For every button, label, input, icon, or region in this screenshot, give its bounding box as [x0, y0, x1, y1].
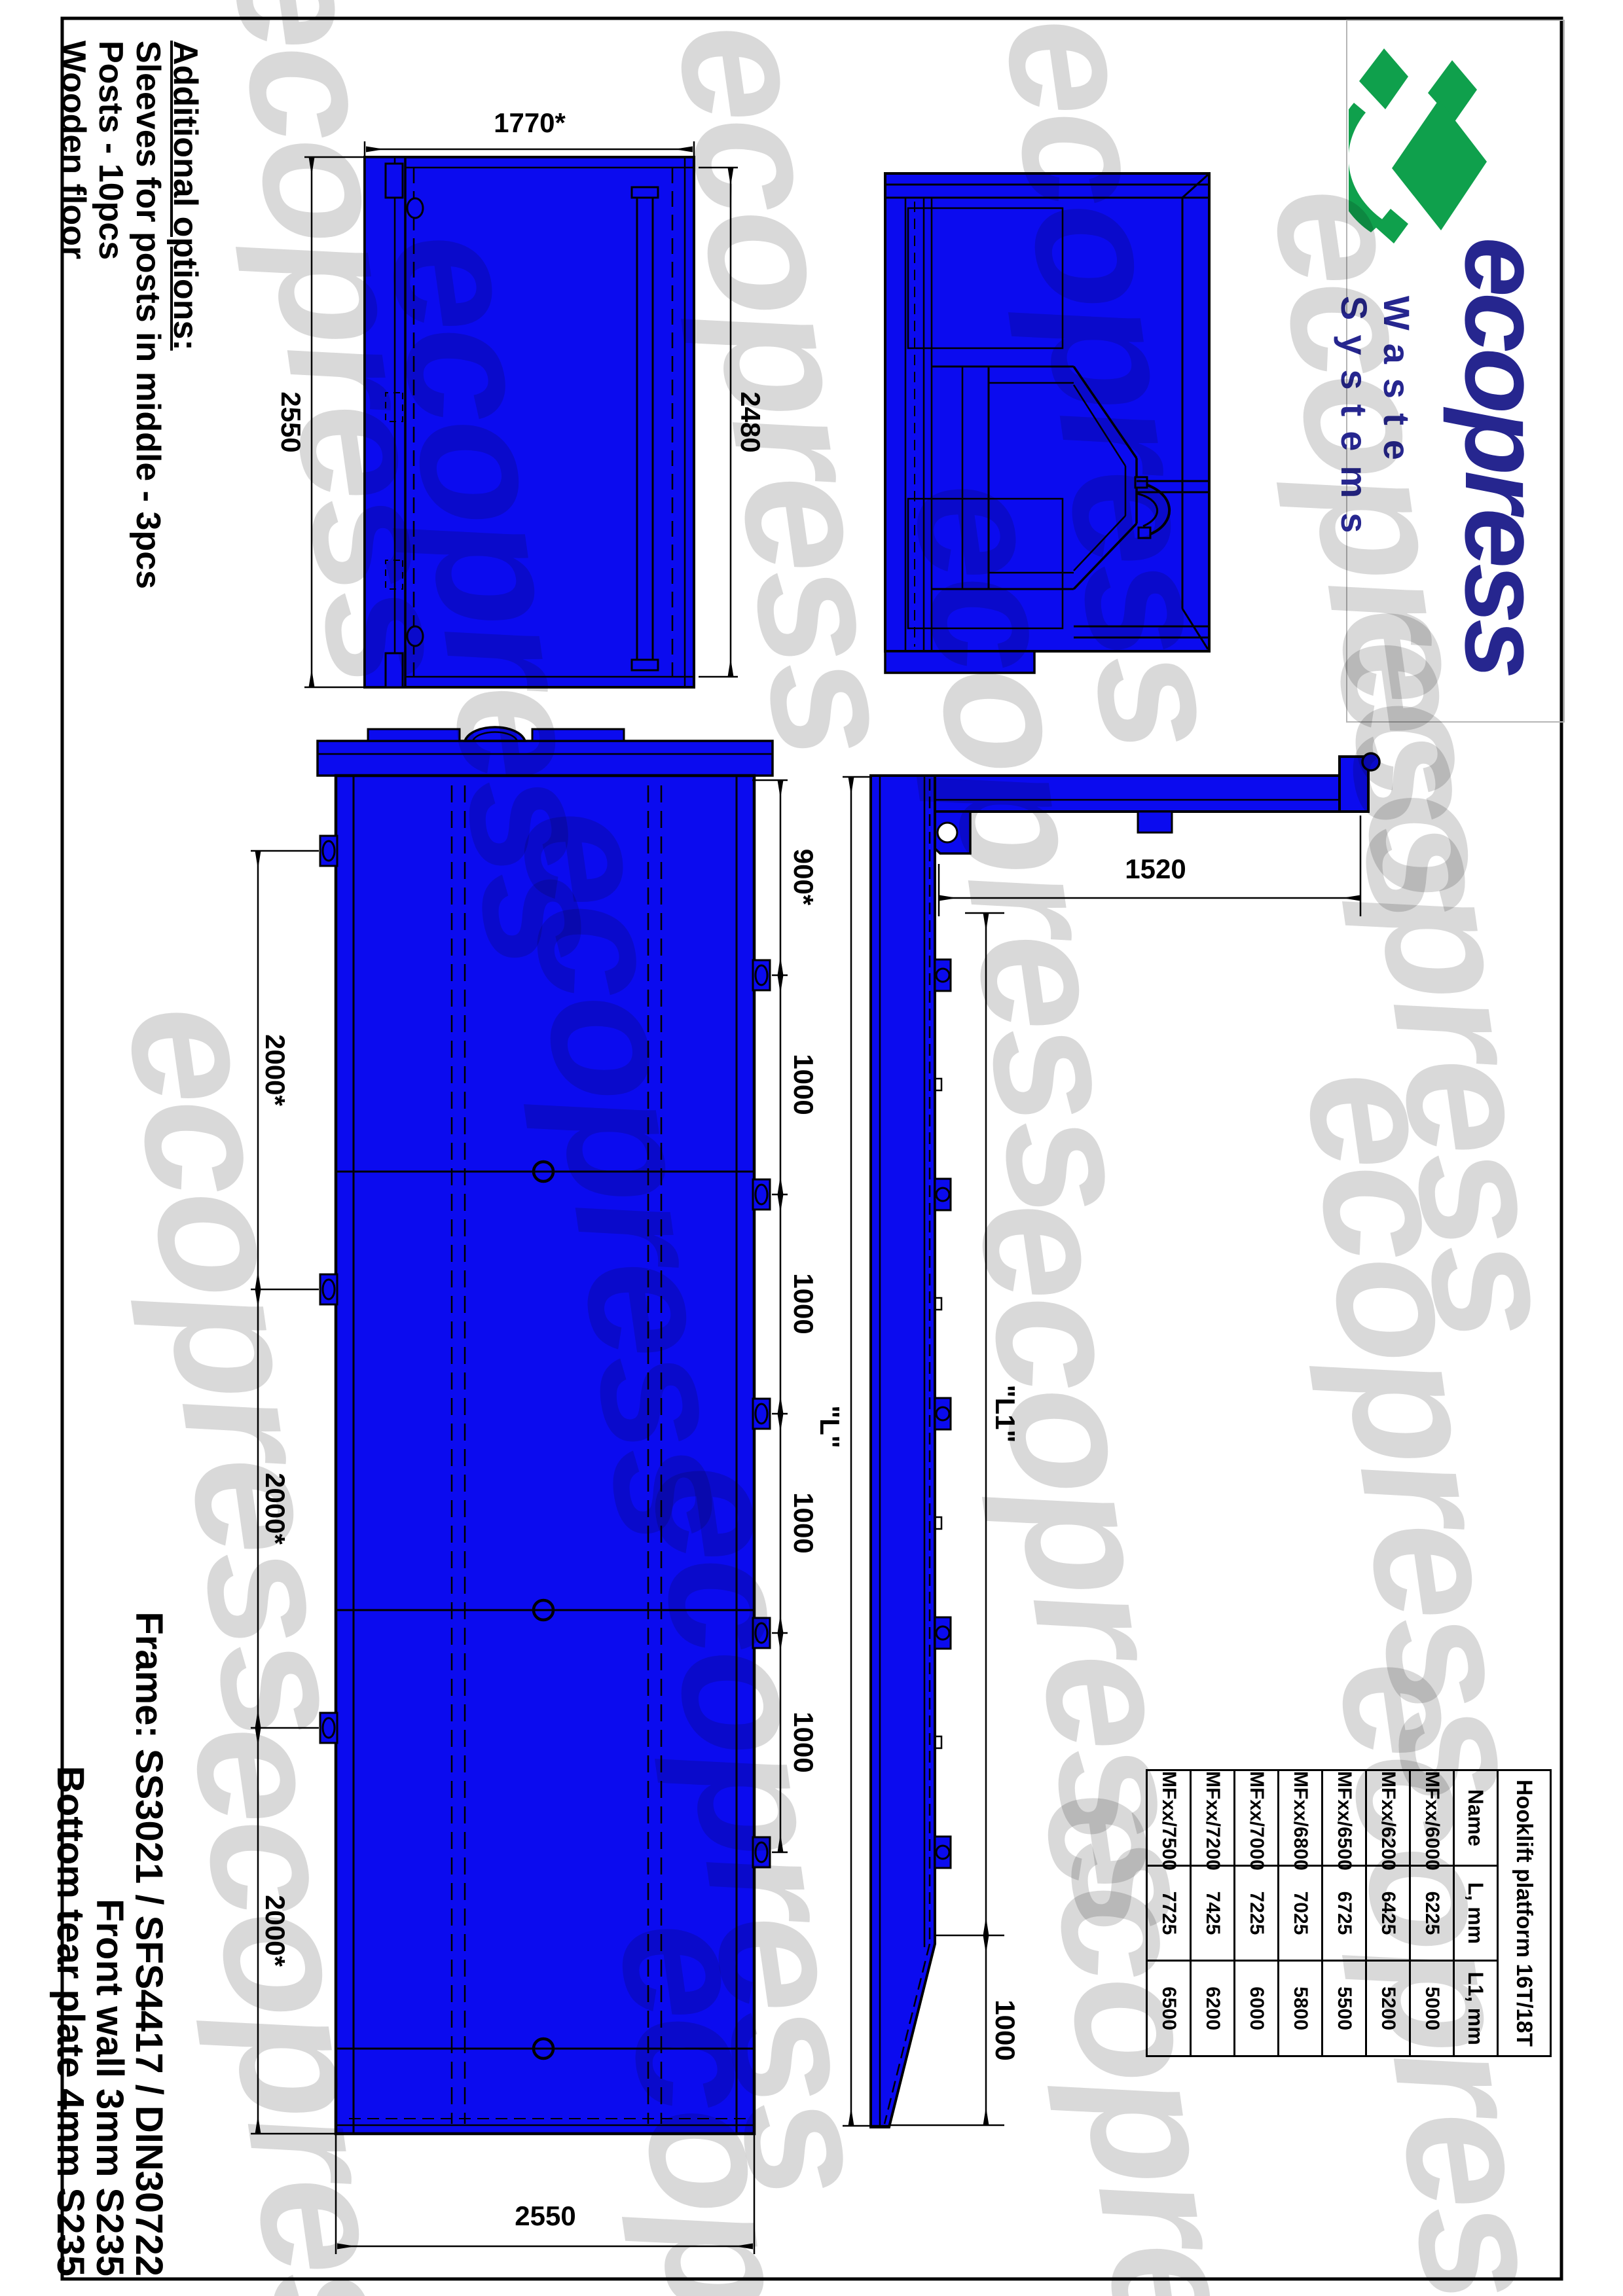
rear-view-drawing — [885, 173, 1209, 673]
col-header-name: Name — [1454, 1770, 1498, 1866]
cell-l1: 5500 — [1322, 1961, 1366, 2056]
size-table: Hooklift platform 16T/18T Name L, mm L1,… — [1146, 1769, 1552, 2057]
dim-plan-sleeve-3: 1000 — [788, 1492, 819, 1553]
spec-note: Frame: SS3021 / SFS4417 / DIN30722 Front… — [50, 1524, 168, 2276]
side-sleeves — [935, 960, 951, 1868]
dim-front-inner-height: 2480 — [735, 391, 766, 452]
options-note-item: Sleeves for posts in middle - 3pcs — [129, 41, 166, 589]
cell-l: 7025 — [1279, 1865, 1322, 1961]
cell-l: 6225 — [1410, 1865, 1454, 1961]
dim-front-width: 1770* — [494, 107, 566, 138]
table-row: MFxx/7500 7725 6500 — [1147, 1770, 1191, 2056]
brand-name: ecopress — [1441, 237, 1565, 675]
dim-side-l1-label: "L1" — [990, 1385, 1021, 1443]
landscape-canvas: 2480 2550 1770* — [0, 0, 1623, 2296]
dim-plan-sleeve-2: 1000 — [788, 1273, 819, 1334]
front-view-drawing: 2480 2550 1770* — [276, 107, 766, 687]
cell-l: 7725 — [1147, 1865, 1191, 1961]
table-row: MFxx/6000 6225 5000 — [1410, 1770, 1454, 2056]
ecopress-logo-icon — [1349, 27, 1562, 250]
spec-note-line: Frame: SS3021 / SFS4417 / DIN30722 — [129, 1524, 168, 2276]
cell-name: MFxx/6800 — [1279, 1770, 1322, 1866]
dim-plan-post-2: 2000* — [260, 1895, 291, 1967]
cell-name: MFxx/7200 — [1191, 1770, 1235, 1866]
cell-name: MFxx/7000 — [1235, 1770, 1279, 1866]
cell-l1: 5800 — [1279, 1961, 1322, 2056]
dim-plan-sleeve-1: 1000 — [788, 1054, 819, 1115]
table-row: MFxx/6200 6425 5200 — [1366, 1770, 1410, 2056]
cell-l1: 6000 — [1235, 1961, 1279, 2056]
cell-l1: 5200 — [1366, 1961, 1410, 2056]
dim-side-tail: 1000 — [990, 2000, 1021, 2060]
table-row: MFxx/7000 7225 6000 — [1235, 1770, 1279, 2056]
cell-name: MFxx/6000 — [1410, 1770, 1454, 1866]
dim-front-outer-height: 2550 — [276, 391, 306, 452]
spec-note-line: Front wall 3mm S235 — [90, 1524, 129, 2276]
col-header-l1: L1, mm — [1454, 1961, 1498, 2056]
spec-note-line: Bottom tear plate 4mm S235 — [50, 1524, 90, 2276]
options-note-item: Posts - 10pcs — [92, 41, 129, 589]
dim-plan-sleeve-4: 1000 — [788, 1712, 819, 1772]
plan-view-drawing: 900* 1000 1000 1000 1000 2000* 2000* 200… — [251, 727, 819, 2254]
cell-name: MFxx/6200 — [1366, 1770, 1410, 1866]
dim-plan-sleeve-0: 900* — [788, 849, 819, 906]
options-note-title: Additional options: — [166, 41, 204, 589]
table-row: MFxx/7200 7425 6200 — [1191, 1770, 1235, 2056]
cell-l1: 5000 — [1410, 1961, 1454, 2056]
cell-l1: 6200 — [1191, 1961, 1235, 2056]
cell-l: 7425 — [1191, 1865, 1235, 1961]
col-header-l: L, mm — [1454, 1865, 1498, 1961]
cell-l: 7225 — [1235, 1865, 1279, 1961]
ecopress-logo: ecopress Waste Systems — [1346, 20, 1565, 723]
dim-plan-width: 2550 — [515, 2200, 575, 2231]
dim-plan-post-1: 2000* — [260, 1473, 291, 1545]
dim-side-l-label: "L" — [814, 1405, 845, 1448]
cell-l1: 6500 — [1147, 1961, 1191, 2056]
brand-tagline: Waste Systems — [1333, 296, 1418, 721]
dim-side-hook-height: 1520 — [1125, 853, 1186, 884]
cell-l: 6725 — [1322, 1865, 1366, 1961]
dim-plan-post-0: 2000* — [260, 1034, 291, 1106]
cell-name: MFxx/7500 — [1147, 1770, 1191, 1866]
cell-l: 6425 — [1366, 1865, 1410, 1961]
drawing-sheet: 2480 2550 1770* — [0, 0, 1623, 2296]
size-table-title: Hooklift platform 16T/18T — [1498, 1770, 1551, 2056]
table-row: MFxx/6800 7025 5800 — [1279, 1770, 1322, 2056]
options-note-item: Wooden floor — [54, 41, 92, 589]
cell-name: MFxx/6500 — [1322, 1770, 1366, 1866]
table-row: MFxx/6500 6725 5500 — [1322, 1770, 1366, 2056]
options-note: Additional options: Sleeves for posts in… — [54, 41, 204, 589]
